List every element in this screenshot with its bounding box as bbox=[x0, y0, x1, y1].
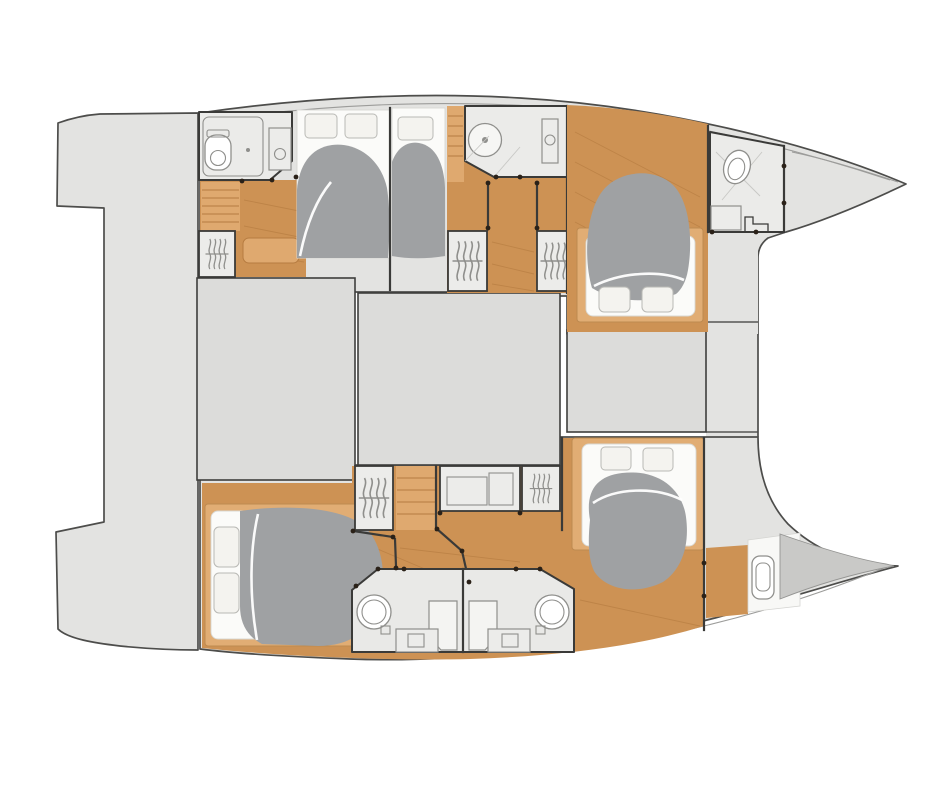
companionway-stairs bbox=[396, 466, 436, 530]
double-berth bbox=[297, 110, 390, 258]
ensuite-bathroom bbox=[465, 106, 567, 177]
vanity-unit bbox=[488, 629, 530, 652]
pillow-icon bbox=[214, 527, 239, 567]
double-berth bbox=[392, 108, 445, 258]
pillow-icon bbox=[398, 117, 433, 140]
ensuite-bathroom bbox=[199, 112, 292, 180]
forepeak-floor bbox=[706, 545, 748, 618]
pillow-icon bbox=[599, 287, 630, 312]
stern-platform bbox=[56, 113, 198, 650]
pillow-icon bbox=[643, 448, 673, 471]
bow-bathroom bbox=[710, 132, 784, 232]
vanity-unit bbox=[711, 206, 741, 230]
deck-plan-page bbox=[0, 0, 940, 788]
pillow-icon bbox=[345, 114, 377, 138]
companionway-stairs bbox=[447, 106, 464, 182]
forepeak-locker bbox=[780, 534, 894, 599]
pillow-icon bbox=[305, 114, 337, 138]
pillow-icon bbox=[601, 447, 631, 470]
toilet-icon bbox=[205, 135, 231, 170]
stern-platform-outline bbox=[56, 113, 198, 650]
vanity-unit bbox=[542, 119, 558, 163]
pillow-icon bbox=[642, 287, 673, 312]
vanity-unit bbox=[396, 629, 438, 652]
foredeck-block bbox=[567, 330, 706, 432]
duvet bbox=[392, 143, 445, 259]
catamaran-deck-plan bbox=[0, 0, 940, 788]
shower-drain-icon bbox=[246, 148, 250, 152]
saloon-block-aft bbox=[197, 278, 355, 480]
pillow-icon bbox=[214, 573, 239, 613]
bench-seat bbox=[243, 238, 299, 263]
twin-bathroom-module bbox=[352, 569, 574, 652]
saloon-block-forward bbox=[358, 293, 560, 465]
